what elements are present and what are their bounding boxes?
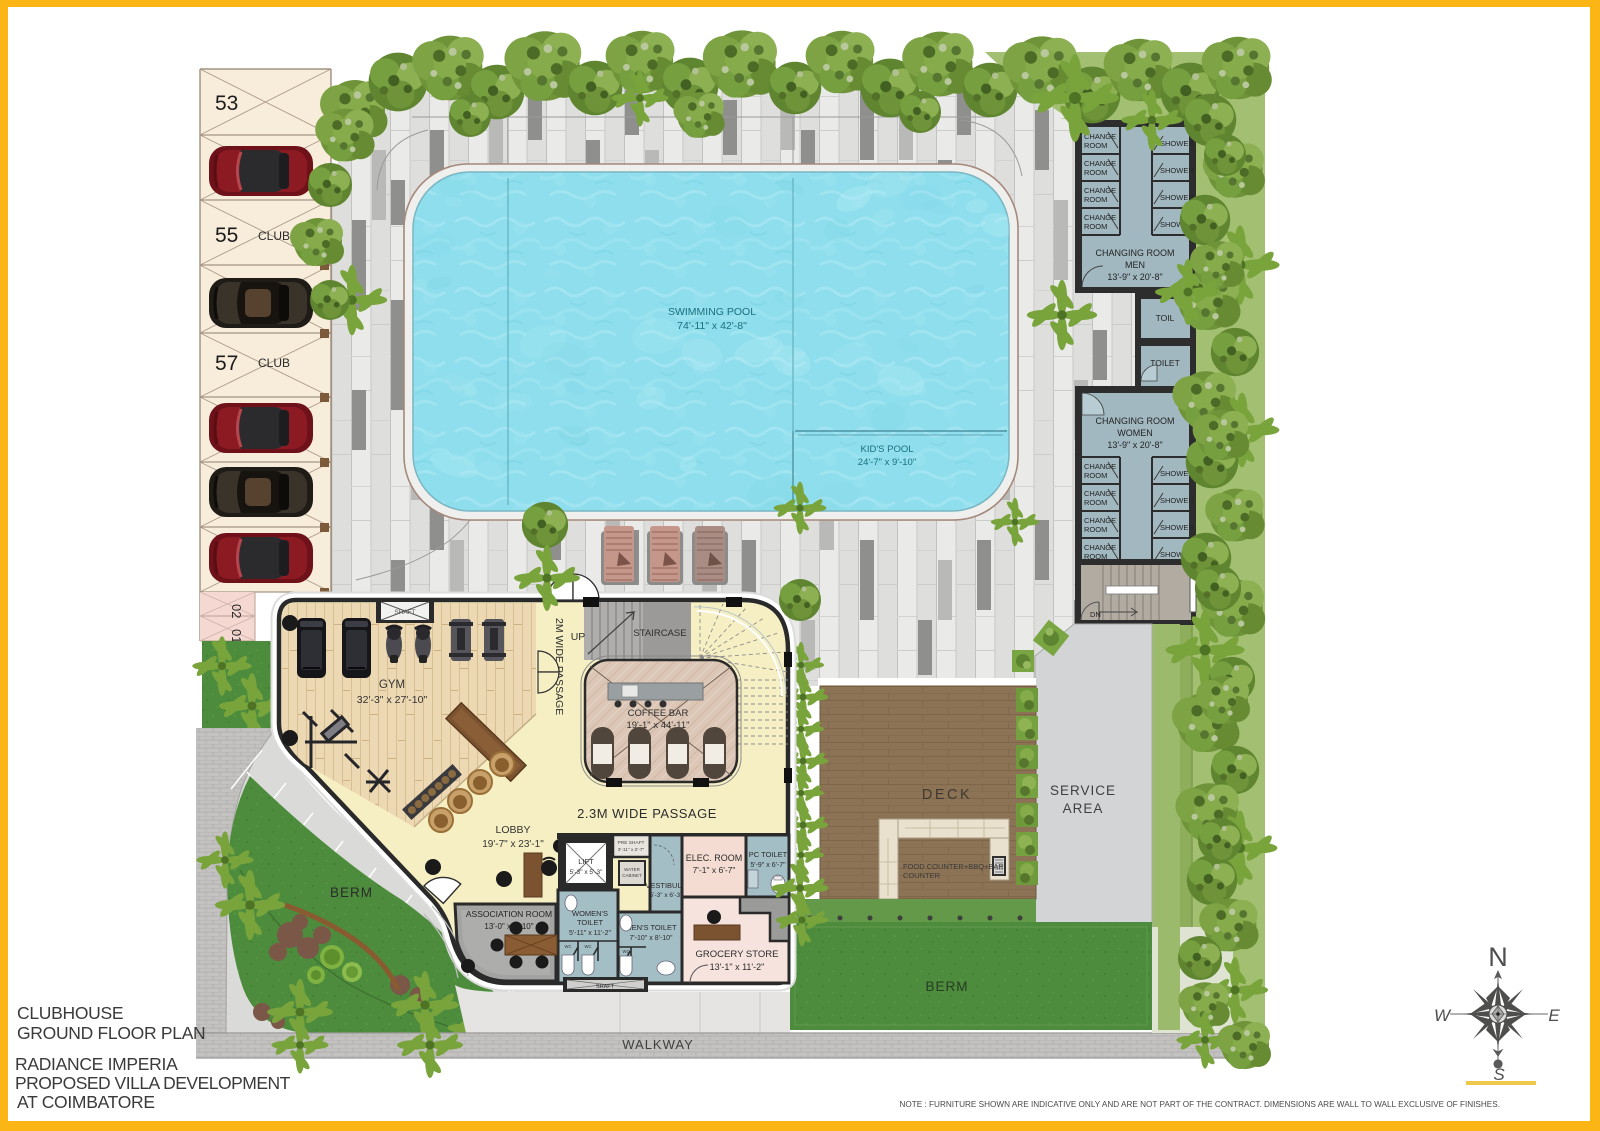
svg-text:SHAFT: SHAFT xyxy=(596,984,615,990)
svg-text:7'-1" x 6'-7": 7'-1" x 6'-7" xyxy=(693,865,736,875)
svg-text:CABINET: CABINET xyxy=(622,873,642,878)
svg-text:32'-3" x 27'-10": 32'-3" x 27'-10" xyxy=(357,694,428,706)
svg-text:ROOM: ROOM xyxy=(1084,471,1107,480)
svg-text:5'-9" x 6'-7": 5'-9" x 6'-7" xyxy=(750,862,786,869)
svg-text:CHANGE: CHANGE xyxy=(1084,516,1116,525)
svg-text:DN: DN xyxy=(1090,610,1101,619)
svg-text:WC: WC xyxy=(623,949,630,954)
svg-text:ASSOCIATION ROOM: ASSOCIATION ROOM xyxy=(466,909,552,919)
svg-text:NOTE : FURNITURE SHOWN ARE IND: NOTE : FURNITURE SHOWN ARE INDICATIVE ON… xyxy=(899,1100,1500,1109)
svg-text:ROOM: ROOM xyxy=(1084,222,1107,231)
svg-text:55: 55 xyxy=(215,224,238,247)
svg-text:GYM: GYM xyxy=(379,679,405,691)
svg-text:ROOM: ROOM xyxy=(1084,525,1107,534)
svg-text:13'-9" x 20'-8": 13'-9" x 20'-8" xyxy=(1107,440,1162,450)
svg-text:2.3M WIDE PASSAGE: 2.3M WIDE PASSAGE xyxy=(577,806,717,821)
svg-text:WALKWAY: WALKWAY xyxy=(622,1037,694,1052)
svg-text:CLUBHOUSE: CLUBHOUSE xyxy=(17,1003,123,1023)
svg-text:57: 57 xyxy=(215,352,238,375)
svg-text:SHOWER: SHOWER xyxy=(1160,523,1194,532)
svg-text:53: 53 xyxy=(215,92,238,115)
svg-text:CHANGE: CHANGE xyxy=(1084,213,1116,222)
svg-text:ROOM: ROOM xyxy=(1084,168,1107,177)
svg-text:CHANGE: CHANGE xyxy=(1084,462,1116,471)
svg-text:GROUND FLOOR PLAN: GROUND FLOOR PLAN xyxy=(17,1023,205,1043)
svg-text:KID'S POOL: KID'S POOL xyxy=(860,444,913,455)
svg-text:19'-7" x 23'-1": 19'-7" x 23'-1" xyxy=(482,839,544,850)
svg-text:AT COIMBATORE: AT COIMBATORE xyxy=(17,1092,155,1112)
svg-text:PRE SHAFT: PRE SHAFT xyxy=(618,840,645,846)
svg-text:ELEC. ROOM: ELEC. ROOM xyxy=(686,853,743,863)
svg-text:5'-3" x 6'-3": 5'-3" x 6'-3" xyxy=(650,892,683,899)
svg-text:LIFT: LIFT xyxy=(578,857,594,866)
svg-text:CLUB: CLUB xyxy=(258,229,290,243)
svg-text:TOIL: TOIL xyxy=(1156,313,1175,323)
svg-text:RADIANCE IMPERIA: RADIANCE IMPERIA xyxy=(15,1054,178,1074)
svg-text:SERVICE: SERVICE xyxy=(1050,783,1116,798)
svg-text:ROOM: ROOM xyxy=(1084,498,1107,507)
svg-text:MEN: MEN xyxy=(1125,260,1145,270)
svg-text:5'-11" x 11'-2": 5'-11" x 11'-2" xyxy=(569,930,612,937)
svg-text:PROPOSED VILLA DEVELOPMENT: PROPOSED VILLA DEVELOPMENT xyxy=(15,1073,291,1093)
svg-text:WOMEN: WOMEN xyxy=(1117,428,1153,438)
svg-text:BERM: BERM xyxy=(330,885,373,900)
svg-text:CHANGE: CHANGE xyxy=(1084,489,1116,498)
svg-text:ROOM: ROOM xyxy=(1084,195,1107,204)
svg-text:CHANGE: CHANGE xyxy=(1084,186,1116,195)
svg-text:LOBBY: LOBBY xyxy=(495,824,530,836)
svg-text:DECK: DECK xyxy=(922,787,972,803)
svg-text:TOILET: TOILET xyxy=(577,918,604,927)
svg-text:SHOWER: SHOWER xyxy=(1160,166,1194,175)
svg-text:W: W xyxy=(1434,1006,1452,1025)
svg-text:COFFEE BAR: COFFEE BAR xyxy=(628,708,689,719)
svg-text:WC: WC xyxy=(565,944,572,949)
svg-text:CHANGE: CHANGE xyxy=(1084,159,1116,168)
svg-text:BERM: BERM xyxy=(925,979,968,994)
svg-text:CLUB: CLUB xyxy=(258,356,290,370)
svg-text:E: E xyxy=(1548,1006,1560,1025)
svg-text:WOMEN'S: WOMEN'S xyxy=(572,909,608,918)
svg-text:02: 02 xyxy=(229,604,244,618)
svg-text:3'-11" x 2'-7": 3'-11" x 2'-7" xyxy=(618,847,645,853)
svg-text:SHAFT: SHAFT xyxy=(394,609,415,616)
svg-text:13'-1" x 11'-2": 13'-1" x 11'-2" xyxy=(710,962,765,972)
svg-text:AREA: AREA xyxy=(1063,801,1104,816)
svg-text:SHOWER: SHOWER xyxy=(1160,139,1194,148)
svg-text:24'-7" x 9'-10": 24'-7" x 9'-10" xyxy=(858,457,916,468)
svg-text:STAIRCASE: STAIRCASE xyxy=(633,628,686,639)
svg-text:13'-0" x 9'-10": 13'-0" x 9'-10" xyxy=(484,922,533,931)
svg-text:WC: WC xyxy=(585,944,592,949)
svg-text:74'-11" x 42'-8": 74'-11" x 42'-8" xyxy=(677,320,747,332)
svg-text:FOOD COUNTER+BBQ+BAR: FOOD COUNTER+BBQ+BAR xyxy=(903,862,1004,871)
svg-text:MEN'S TOILET: MEN'S TOILET xyxy=(625,923,677,932)
svg-text:7'-10" x 8'-10": 7'-10" x 8'-10" xyxy=(629,935,673,942)
svg-text:CHANGING ROOM: CHANGING ROOM xyxy=(1095,416,1174,426)
svg-text:SHOWER: SHOWER xyxy=(1160,496,1194,505)
svg-text:UP: UP xyxy=(571,631,586,643)
svg-text:N: N xyxy=(1488,942,1508,972)
svg-text:CHANGE: CHANGE xyxy=(1084,543,1116,552)
svg-text:WATER: WATER xyxy=(624,867,640,872)
svg-text:SWIMMING POOL: SWIMMING POOL xyxy=(668,306,756,318)
svg-text:COUNTER: COUNTER xyxy=(903,871,941,880)
svg-text:13'-9" x 20'-8": 13'-9" x 20'-8" xyxy=(1107,272,1162,282)
svg-text:GROCERY STORE: GROCERY STORE xyxy=(696,949,779,960)
svg-text:PC TOILET: PC TOILET xyxy=(749,850,788,859)
svg-text:ROOM: ROOM xyxy=(1084,141,1107,150)
svg-text:VESTIBULE: VESTIBULE xyxy=(645,881,686,890)
svg-text:CHANGING ROOM: CHANGING ROOM xyxy=(1095,248,1174,258)
svg-text:5'-3" x 5'-3": 5'-3" x 5'-3" xyxy=(570,869,603,876)
